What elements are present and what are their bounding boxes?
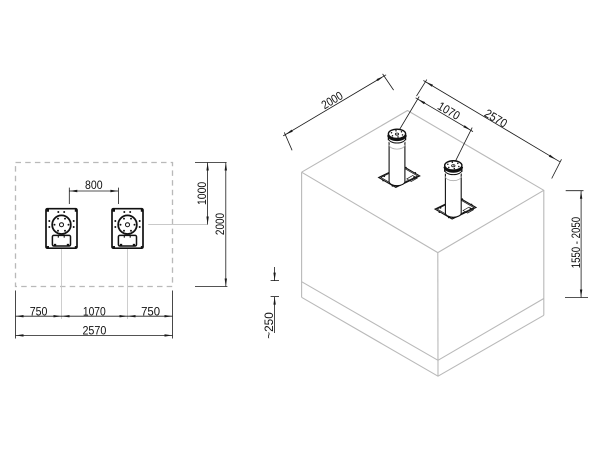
svg-text:750: 750 xyxy=(30,304,48,318)
svg-text:1070: 1070 xyxy=(83,304,106,318)
svg-text:2000: 2000 xyxy=(319,88,346,112)
svg-text:750: 750 xyxy=(141,304,160,318)
svg-text:2570: 2570 xyxy=(482,106,510,130)
svg-text:2570: 2570 xyxy=(82,324,106,338)
svg-text:1070: 1070 xyxy=(435,99,463,123)
svg-text:800: 800 xyxy=(85,178,103,192)
svg-text:1000: 1000 xyxy=(195,181,209,205)
svg-text:~250: ~250 xyxy=(262,312,276,339)
svg-text:2000: 2000 xyxy=(213,213,227,235)
svg-text:1550 - 2050: 1550 - 2050 xyxy=(569,217,583,269)
